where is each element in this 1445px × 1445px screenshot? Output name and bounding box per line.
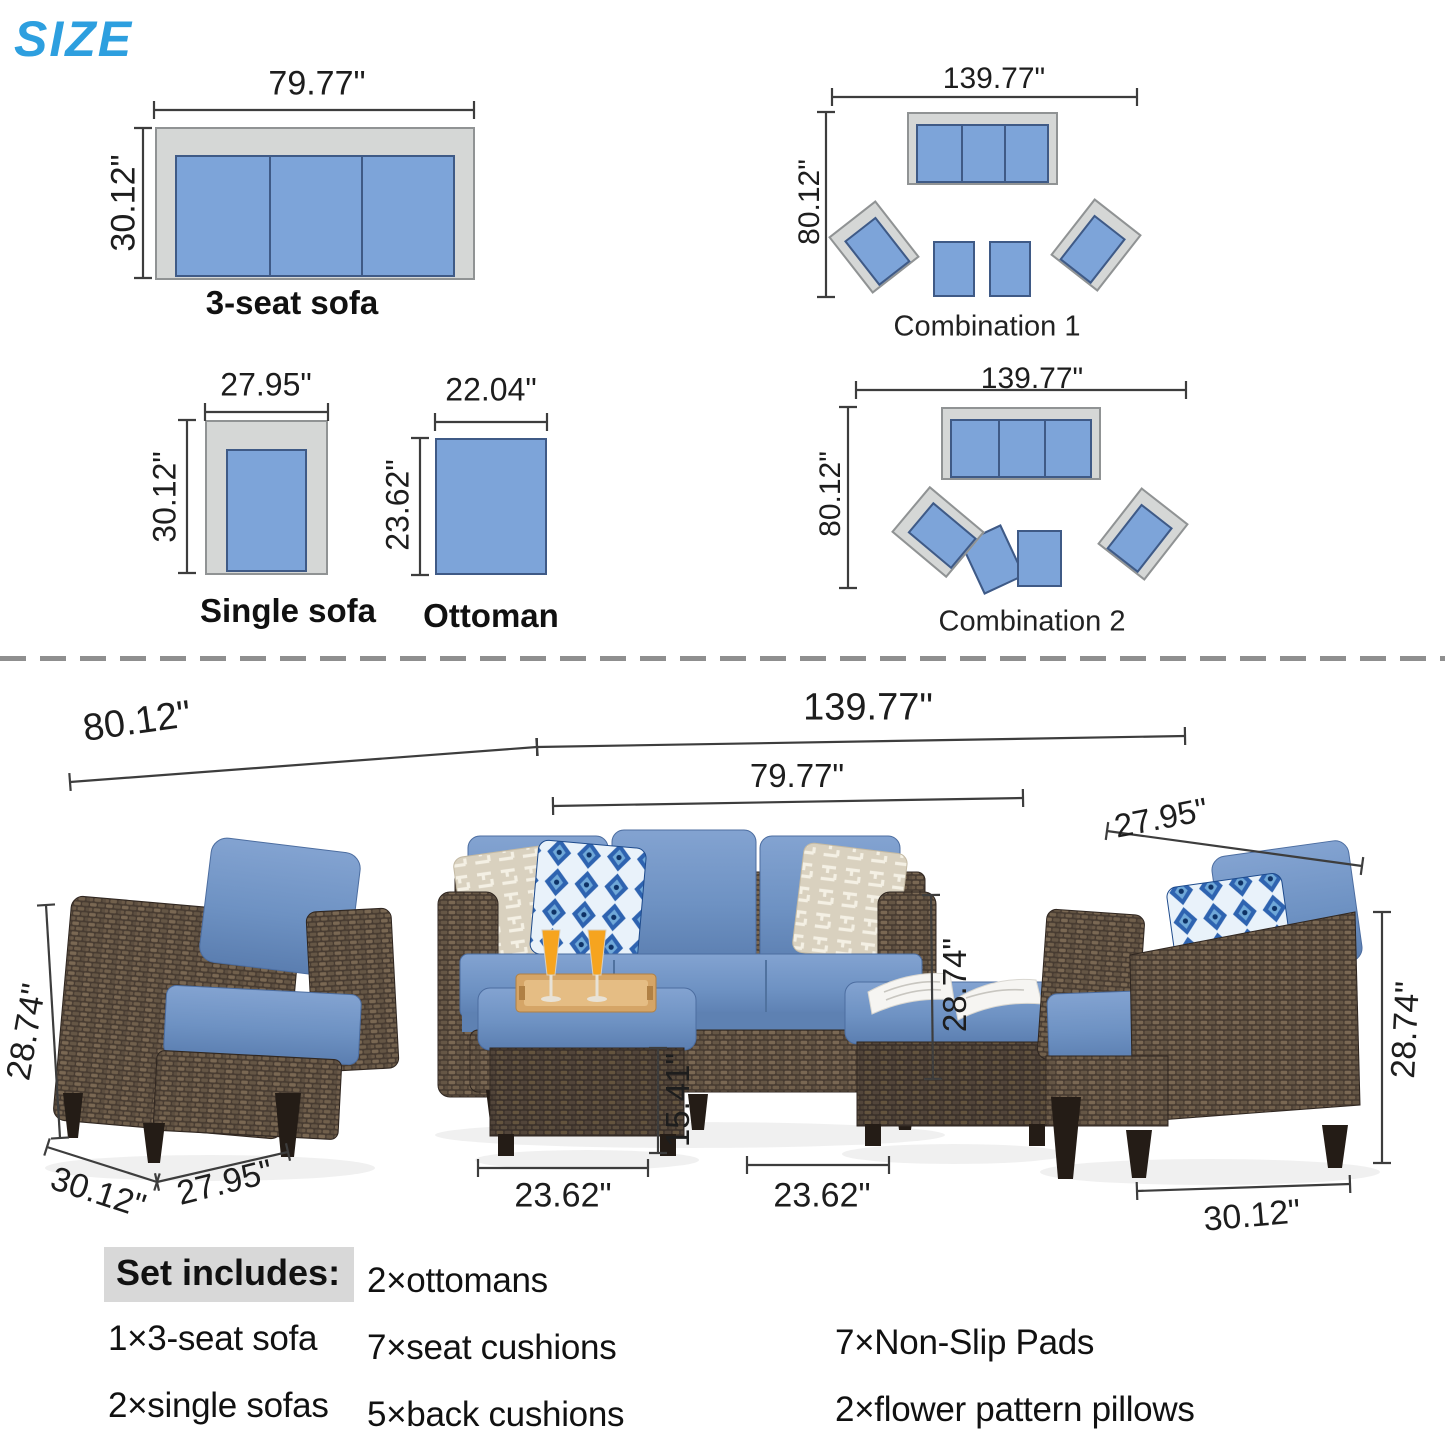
- single-sofa-left-photo: [53, 836, 400, 1163]
- set-includes-heading: Set includes:: [104, 1247, 354, 1302]
- dim-photo-span-total: 139.77": [803, 687, 933, 730]
- sofa3-topview: [155, 127, 475, 280]
- label-combo1: Combination 1: [894, 311, 1081, 344]
- ottoman-legs: [498, 1134, 676, 1156]
- combo2-right-chair: [1097, 487, 1189, 581]
- set-item: 2×flower pattern pillows: [835, 1387, 1195, 1433]
- dim-photo-chair-depth-right: 30.12": [1202, 1192, 1302, 1239]
- dim-photo-span-left: 80.12": [80, 693, 194, 751]
- label-combo2: Combination 2: [939, 606, 1126, 639]
- dim-photo-chair-height-right: 28.74": [1384, 980, 1428, 1079]
- label-sofa3: 3-seat sofa: [206, 284, 378, 322]
- combo1-right-chair: [1050, 198, 1142, 292]
- dim-photo-sofa-height: 28.74": [936, 938, 974, 1032]
- dim-photo-ottoman-width-right: 23.62": [773, 1177, 870, 1216]
- dim-combo1-depth: 80.12": [793, 159, 827, 245]
- beige-pattern-pillow-left: [452, 843, 579, 973]
- combo2-sofa-cushions: [950, 419, 1092, 478]
- combo1-sofa-cushions: [916, 124, 1049, 183]
- ottoman-legs-right: [865, 1124, 1045, 1146]
- combo2-sofa: [941, 407, 1101, 480]
- label-single: Single sofa: [200, 592, 376, 630]
- dim-photo-sofa-width: 79.77": [750, 757, 844, 795]
- dim-photo-chair-front-left: 27.95": [173, 1152, 277, 1213]
- set-includes-col1: 1×3-seat sofa 2×single sofas: [108, 1316, 329, 1445]
- dim-photo-chair-depth-left: 30.12": [46, 1159, 150, 1226]
- page-title: SIZE: [14, 10, 133, 68]
- sofa-legs: [486, 1090, 916, 1130]
- dim-ottoman-width: 22.04": [445, 372, 536, 409]
- set-item: 1×3-seat sofa: [108, 1316, 329, 1362]
- ikat-pillow-sofa: [529, 840, 647, 963]
- dim-single-width: 27.95": [220, 367, 311, 404]
- dim-photo-ottoman-height: 15.41": [659, 1053, 697, 1147]
- dashed-divider: [0, 656, 1445, 661]
- size-infographic: SIZE: [0, 0, 1445, 1445]
- dim-photo-chair-width: 27.95": [1111, 790, 1211, 845]
- dim-sofa3-width: 79.77": [268, 65, 365, 104]
- combo1-ottoman-2: [989, 241, 1031, 297]
- combo2-center-ottoman: [1017, 530, 1062, 587]
- single-sofa-topview: [205, 420, 328, 575]
- set-item: 7×seat cushions: [367, 1325, 624, 1371]
- set-item: 7×Non-Slip Pads: [835, 1320, 1195, 1366]
- set-item: 2×ottomans: [367, 1258, 624, 1304]
- dim-combo1-width: 139.77": [943, 62, 1045, 96]
- single-sofa-right-photo: [1037, 839, 1364, 1179]
- combo1-ottoman-1: [933, 241, 975, 297]
- dim-photo-chair-height-left: 28.74": [0, 981, 55, 1083]
- combo1-sofa: [907, 112, 1058, 185]
- dim-combo2-depth: 80.12": [814, 451, 848, 537]
- juice-glass-2: [587, 930, 607, 1002]
- single-sofa-cushion: [226, 449, 307, 572]
- dim-photo-ottoman-width-left: 23.62": [514, 1177, 611, 1216]
- set-includes-col2: 2×ottomans 7×seat cushions 5×back cushio…: [367, 1258, 624, 1445]
- label-ottoman: Ottoman: [423, 597, 559, 635]
- dim-single-depth: 30.12": [147, 451, 184, 542]
- ottoman-topview: [435, 438, 547, 575]
- set-item: 2×single sofas: [108, 1383, 329, 1429]
- beige-pattern-pillow-right: [792, 842, 909, 964]
- dim-combo2-width: 139.77": [981, 362, 1083, 396]
- chair-legs-right: [1051, 1097, 1348, 1179]
- set-item: 5×back cushions: [367, 1392, 624, 1438]
- sofa3-cushions: [175, 155, 455, 277]
- juice-glass-1: [541, 930, 561, 1002]
- dim-ottoman-depth: 23.62": [380, 459, 417, 550]
- ikat-pillow-chair: [1166, 872, 1291, 957]
- serving-tray: [516, 974, 656, 1012]
- combo1-left-chair: [828, 200, 920, 294]
- set-includes-col3: 7×Non-Slip Pads 2×flower pattern pillows: [835, 1320, 1195, 1445]
- dim-sofa3-depth: 30.12": [105, 154, 144, 251]
